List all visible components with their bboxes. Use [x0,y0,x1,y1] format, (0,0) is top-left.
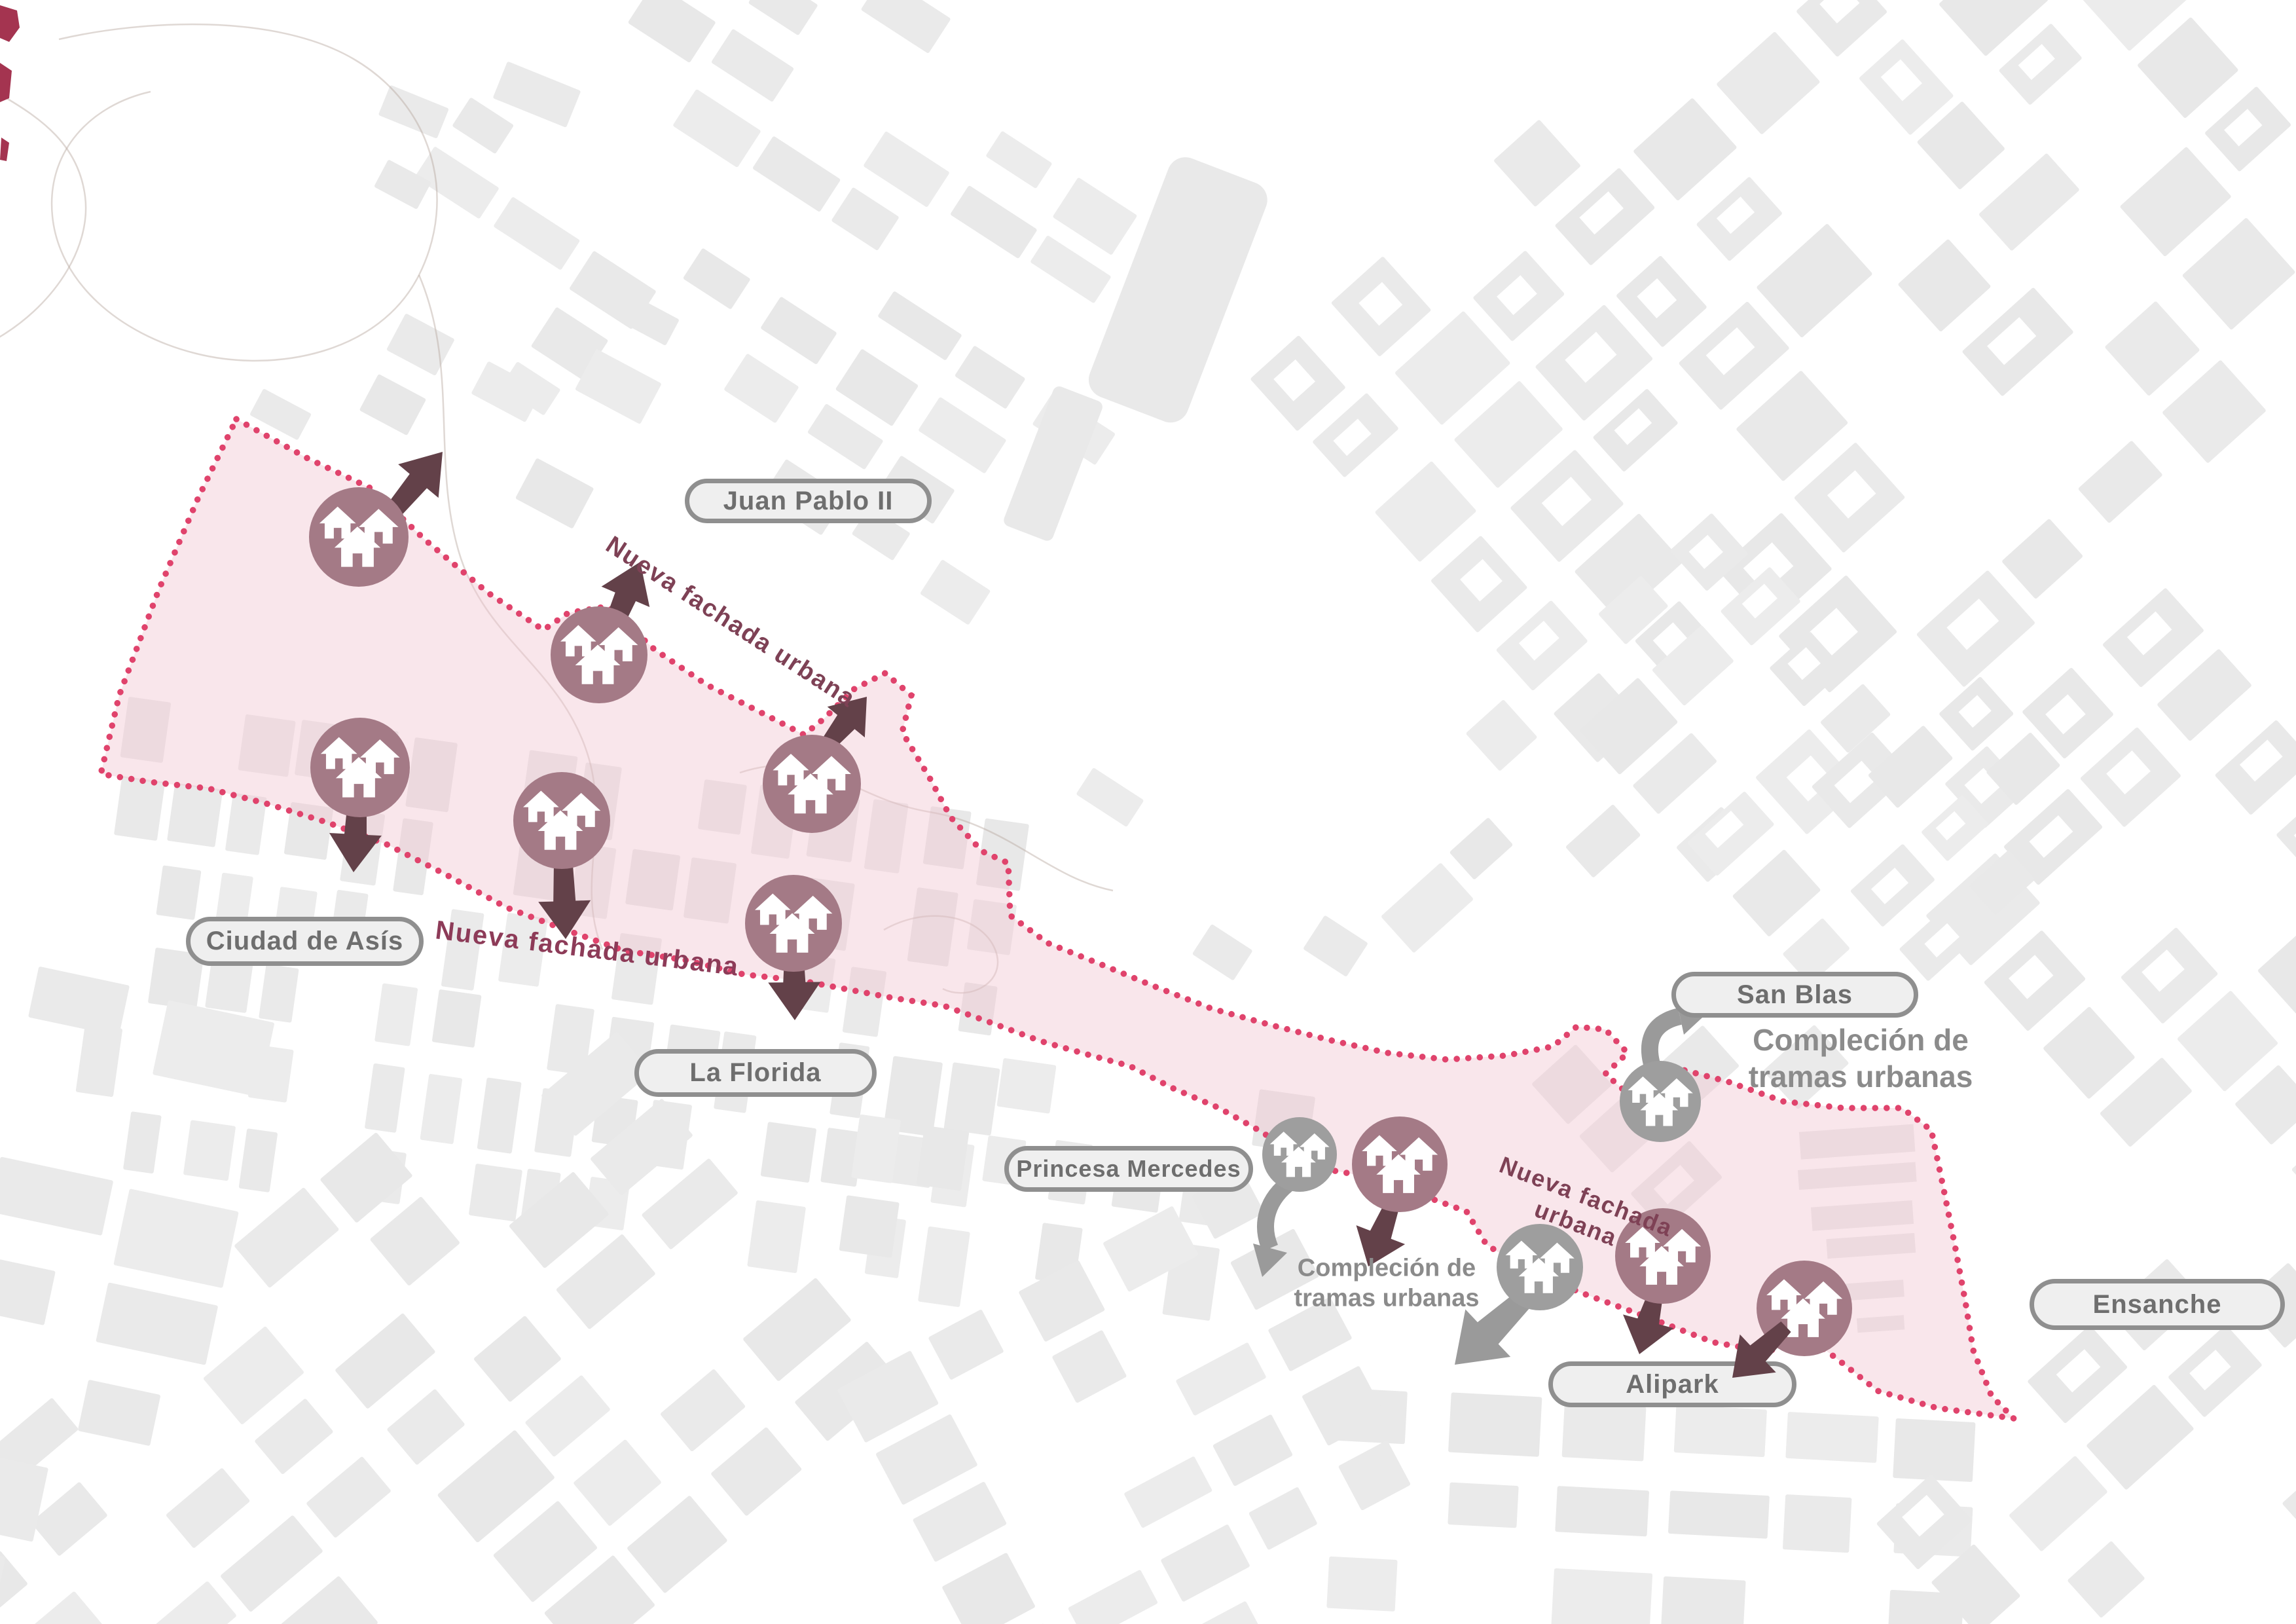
annotation-line: tramas urbanas [1294,1285,1479,1312]
district-label-juan-pablo-ii: Juan Pablo II [685,479,932,523]
district-label-text: La Florida [689,1058,821,1088]
house-cluster-icon [551,606,647,703]
house-cluster-icon [309,487,409,587]
district-label-text: San Blas [1737,980,1853,1010]
district-label-san-blas: San Blas [1671,972,1918,1018]
district-label-ensanche: Ensanche [2030,1279,2285,1330]
urban-plan-map: Juan Pablo II Ciudad de Asís La Florida … [0,0,2296,1624]
house-cluster-icon [745,875,842,972]
house-cluster-icon [310,718,410,817]
district-label-princesa-mercedes: Princesa Mercedes [1004,1146,1253,1192]
district-label-text: Alipark [1626,1370,1719,1399]
district-label-text: Ensanche [2093,1290,2222,1319]
annotation-complecion-tramas-1: Compleción de tramas urbanas [1749,1022,1973,1095]
district-label-la-florida: La Florida [634,1049,877,1097]
district-label-text: Juan Pablo II [723,487,894,516]
house-cluster-icon [513,772,610,869]
house-cluster-icon [1352,1116,1448,1212]
annotation-line: Compleción de [1298,1255,1476,1282]
house-cluster-icon [1620,1061,1701,1142]
landmark-building [1002,142,1272,572]
house-cluster-icon [1262,1117,1337,1192]
annotation-line: tramas urbanas [1749,1060,1973,1094]
district-label-text: Ciudad de Asís [206,927,403,956]
house-cluster-icon [1757,1261,1852,1356]
district-label-text: Princesa Mercedes [1016,1155,1241,1183]
annotation-line: Compleción de [1753,1023,1969,1057]
map-canvas [0,0,2296,1624]
house-cluster-icon [763,735,861,833]
district-label-ciudad-de-asis: Ciudad de Asís [186,917,424,966]
city-block-district [1321,1386,1977,1624]
district-label-alipark: Alipark [1548,1361,1796,1407]
annotation-complecion-tramas-2: Compleción de tramas urbanas [1294,1253,1479,1314]
map-edge-fragment [0,5,20,161]
